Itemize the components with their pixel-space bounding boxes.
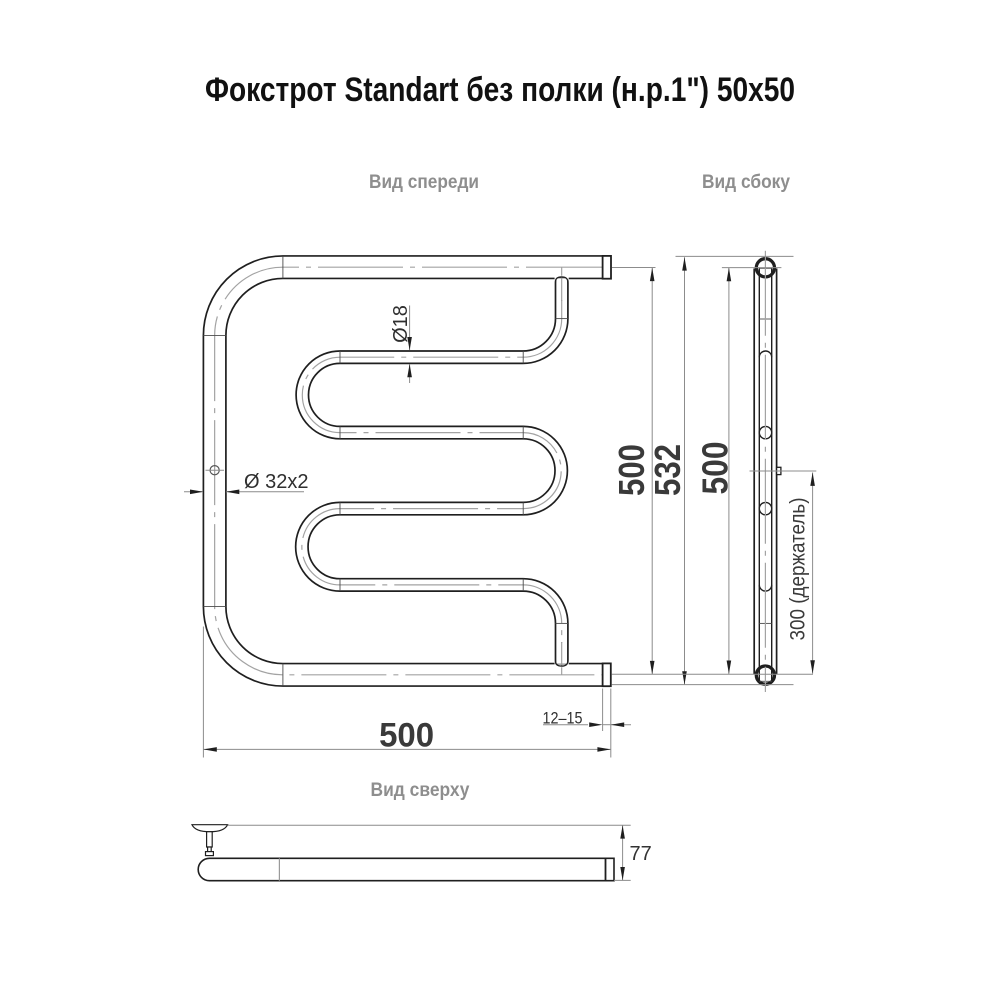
svg-text:Ø18: Ø18 xyxy=(390,305,412,343)
svg-text:Вид спереди: Вид спереди xyxy=(369,172,479,193)
svg-text:500: 500 xyxy=(611,444,652,496)
svg-text:Вид сбоку: Вид сбоку xyxy=(702,172,790,193)
svg-text:Вид сверху: Вид сверху xyxy=(371,780,470,801)
svg-text:300 (держатель): 300 (держатель) xyxy=(787,498,810,641)
svg-text:500: 500 xyxy=(695,442,736,495)
svg-text:532: 532 xyxy=(647,444,688,496)
svg-text:12–15: 12–15 xyxy=(543,710,583,728)
svg-text:Фокстрот Standart без полки (н: Фокстрот Standart без полки (н.р.1") 50х… xyxy=(205,71,795,109)
svg-text:Ø 32х2: Ø 32х2 xyxy=(244,471,308,493)
svg-text:77: 77 xyxy=(630,843,652,865)
svg-text:500: 500 xyxy=(379,716,434,754)
